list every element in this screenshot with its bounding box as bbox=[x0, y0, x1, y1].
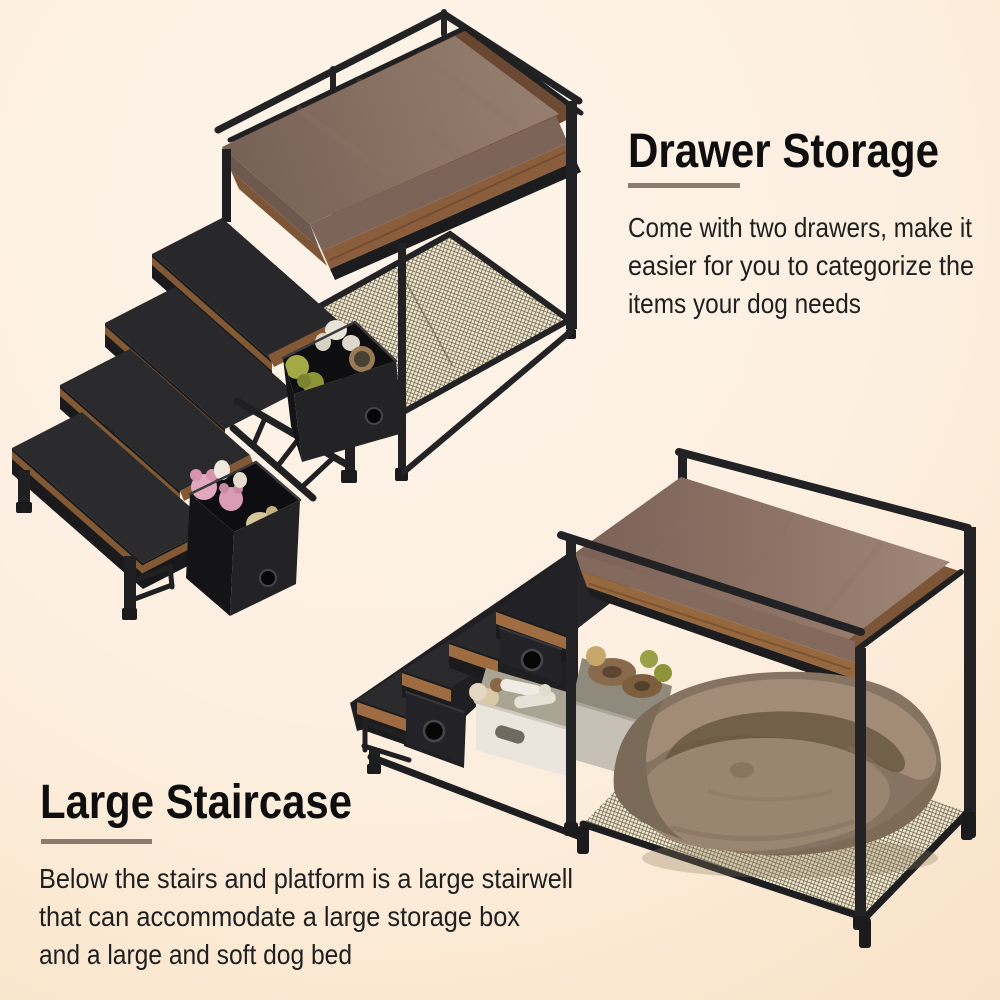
svg-text:that can accommodate a large s: that can accommodate a large storage box bbox=[39, 901, 520, 932]
svg-text:Large Staircase: Large Staircase bbox=[40, 776, 352, 829]
svg-text:and a large and soft dog bed: and a large and soft dog bed bbox=[39, 939, 352, 970]
svg-text:Drawer Storage: Drawer Storage bbox=[628, 125, 939, 178]
svg-text:easier for you to categorize t: easier for you to categorize the bbox=[628, 250, 974, 281]
svg-text:items your dog needs: items your dog needs bbox=[628, 288, 861, 319]
svg-text:Below the stairs and platform: Below the stairs and platform is a large… bbox=[39, 863, 573, 894]
svg-text:Come with two drawers, make it: Come with two drawers, make it bbox=[628, 212, 972, 243]
